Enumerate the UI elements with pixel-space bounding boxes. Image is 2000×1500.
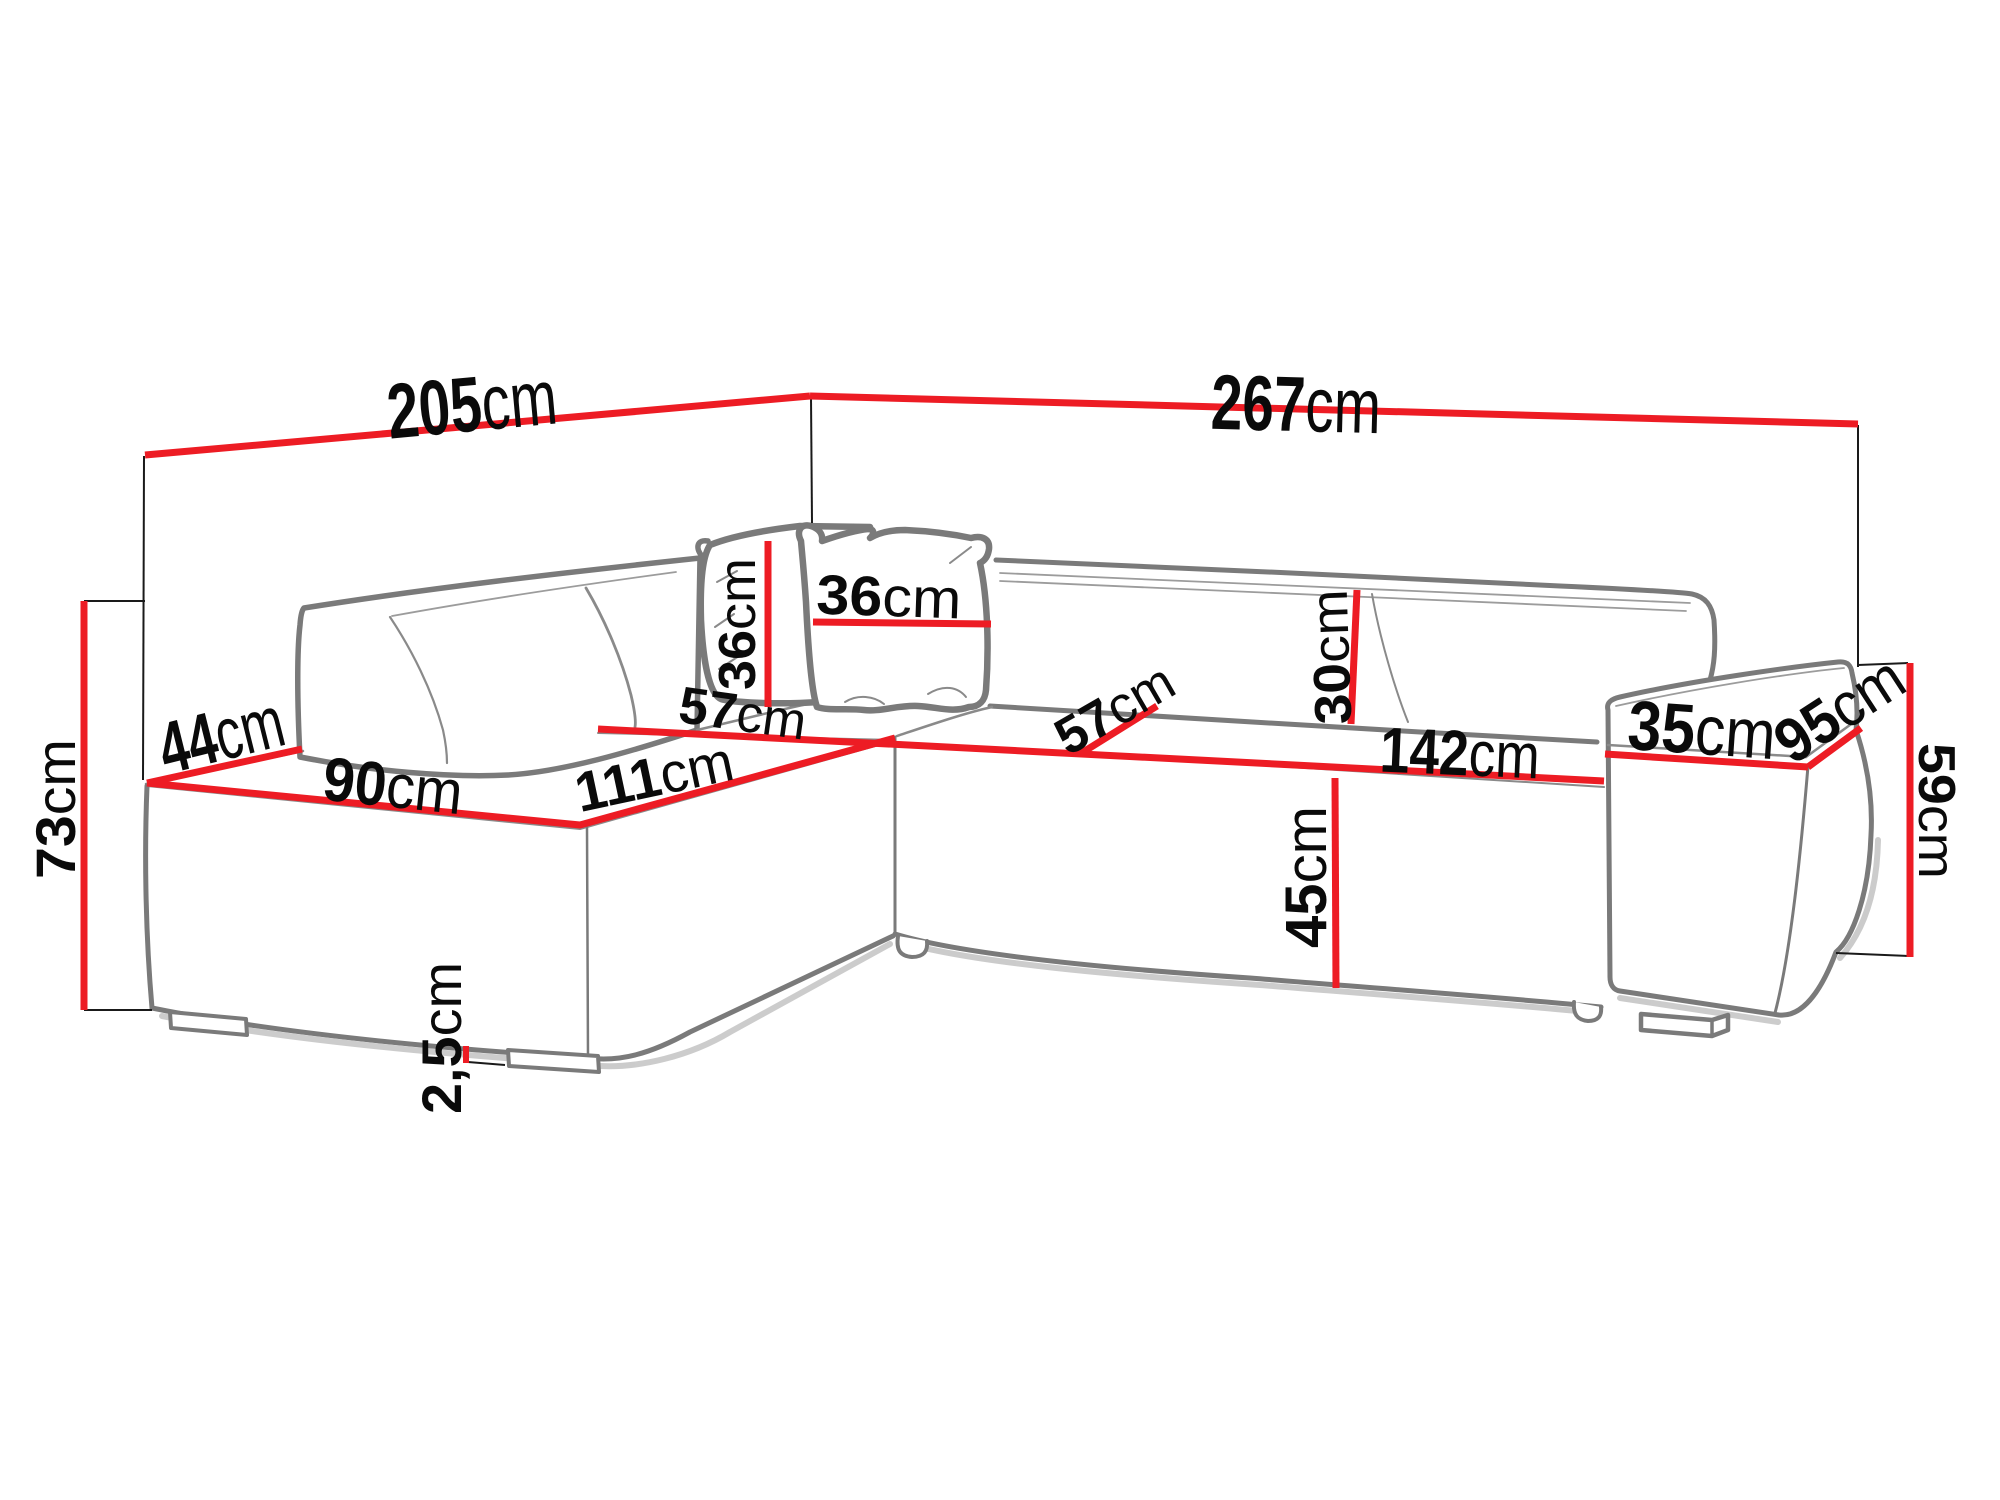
svg-text:267cm: 267cm xyxy=(1210,358,1382,450)
svg-text:73cm: 73cm xyxy=(24,739,87,879)
svg-text:59cm: 59cm xyxy=(1907,743,1965,879)
svg-text:205cm: 205cm xyxy=(383,352,560,455)
svg-text:45cm: 45cm xyxy=(1274,806,1339,948)
svg-text:142cm: 142cm xyxy=(1378,714,1541,793)
svg-text:35cm: 35cm xyxy=(1625,686,1778,774)
svg-text:30cm: 30cm xyxy=(1301,588,1364,725)
svg-text:90cm: 90cm xyxy=(320,745,466,828)
svg-text:36cm: 36cm xyxy=(709,558,767,690)
svg-text:36cm: 36cm xyxy=(815,562,962,630)
svg-text:2,5cm: 2,5cm xyxy=(410,962,473,1114)
